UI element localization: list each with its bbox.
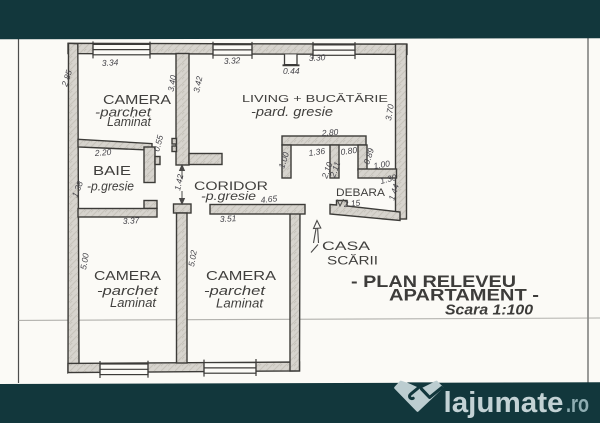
svg-text:2.15: 2.15 xyxy=(342,198,361,210)
svg-text:SCĂRII: SCĂRII xyxy=(327,253,378,268)
svg-text:Scara 1:100: Scara 1:100 xyxy=(445,302,534,319)
svg-text:CASA: CASA xyxy=(322,239,370,253)
svg-text:2.80: 2.80 xyxy=(320,127,338,138)
svg-text:-p.gresie: -p.gresie xyxy=(201,189,256,203)
svg-text:CAMERA: CAMERA xyxy=(94,269,162,283)
svg-text:3.32: 3.32 xyxy=(224,55,241,66)
svg-text:-pard. gresie: -pard. gresie xyxy=(251,104,333,119)
svg-text:3.30: 3.30 xyxy=(309,52,326,63)
svg-text:lajumate: lajumate xyxy=(444,387,564,419)
svg-text:Laminat: Laminat xyxy=(110,296,157,310)
svg-text:0.44: 0.44 xyxy=(283,66,300,76)
svg-text:BAIE: BAIE xyxy=(93,164,131,178)
svg-text:4.65: 4.65 xyxy=(260,193,278,205)
svg-text:DEBARA: DEBARA xyxy=(336,187,386,199)
svg-text:3.37: 3.37 xyxy=(123,215,140,226)
svg-text:Laminat: Laminat xyxy=(107,115,152,129)
svg-text:3.51: 3.51 xyxy=(220,213,237,224)
svg-text:.ro: .ro xyxy=(566,391,589,418)
svg-text:Laminat: Laminat xyxy=(216,297,264,311)
svg-text:2.20: 2.20 xyxy=(93,147,111,158)
svg-text:CAMERA: CAMERA xyxy=(206,269,277,283)
svg-text:3.34: 3.34 xyxy=(102,57,119,68)
svg-text:-p.gresie: -p.gresie xyxy=(87,180,134,194)
